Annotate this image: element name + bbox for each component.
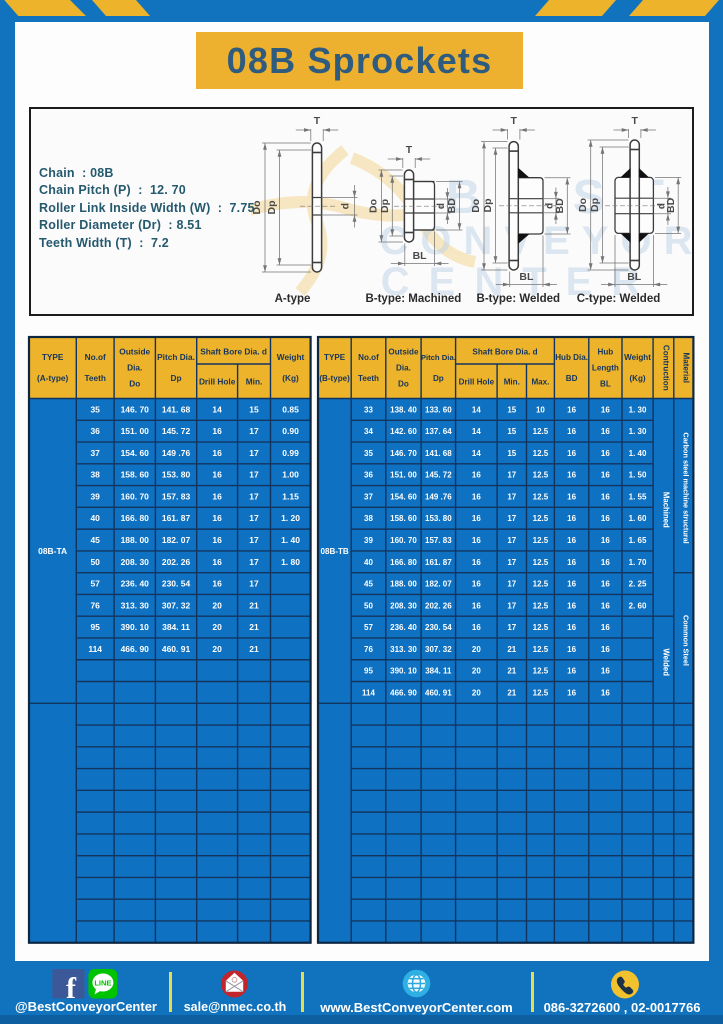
svg-text:307. 32: 307. 32 (162, 600, 191, 610)
svg-text:230. 54: 230. 54 (425, 623, 452, 632)
svg-text:1. 60: 1. 60 (628, 514, 646, 523)
svg-text:(B-type): (B-type) (319, 374, 350, 383)
svg-text:12.5: 12.5 (532, 536, 548, 545)
svg-text:21: 21 (249, 643, 259, 653)
svg-text:Dia.: Dia. (396, 363, 411, 372)
svg-text:16: 16 (601, 514, 610, 523)
svg-text:182. 07: 182. 07 (425, 579, 452, 588)
svg-text:16: 16 (567, 514, 576, 523)
svg-text:BD: BD (446, 198, 458, 214)
svg-text:460. 91: 460. 91 (425, 688, 452, 697)
svg-text:16: 16 (212, 556, 222, 566)
svg-text:40: 40 (364, 557, 373, 566)
svg-text:16: 16 (471, 536, 480, 545)
svg-text:(Kg): (Kg) (282, 373, 299, 383)
svg-text:Weight: Weight (624, 353, 651, 362)
svg-text:1. 70: 1. 70 (628, 557, 646, 566)
svg-text:17: 17 (249, 578, 259, 588)
svg-text:1.15: 1.15 (282, 491, 299, 501)
svg-text:12.5: 12.5 (532, 514, 548, 523)
svg-text:15: 15 (507, 427, 516, 436)
svg-text:16: 16 (601, 579, 610, 588)
svg-text:16: 16 (601, 536, 610, 545)
svg-text:35: 35 (90, 404, 100, 414)
svg-text:08B-TA: 08B-TA (38, 545, 67, 555)
svg-text:166. 80: 166. 80 (390, 557, 417, 566)
svg-text:14: 14 (212, 404, 222, 414)
svg-text:08B-TB: 08B-TB (320, 546, 348, 555)
svg-text:21: 21 (507, 644, 516, 653)
svg-text:38: 38 (364, 514, 373, 523)
svg-text:14: 14 (471, 427, 480, 436)
svg-text:1. 55: 1. 55 (628, 492, 646, 501)
svg-text:153. 80: 153. 80 (425, 514, 452, 523)
svg-text:(Kg): (Kg) (629, 374, 645, 383)
svg-text:390. 10: 390. 10 (390, 666, 417, 675)
svg-text:16: 16 (567, 448, 576, 457)
svg-text:17: 17 (507, 492, 516, 501)
svg-text:17: 17 (507, 536, 516, 545)
svg-text:154. 60: 154. 60 (121, 447, 150, 457)
svg-text:BD: BD (565, 374, 577, 383)
svg-text:T: T (314, 115, 321, 127)
svg-text:149 .76: 149 .76 (425, 492, 452, 501)
svg-text:Do: Do (367, 199, 379, 213)
svg-text:33: 33 (364, 405, 373, 414)
svg-text:151. 00: 151. 00 (121, 426, 150, 436)
svg-text:16: 16 (601, 492, 610, 501)
svg-text:16: 16 (567, 427, 576, 436)
svg-text:2. 60: 2. 60 (628, 601, 646, 610)
svg-text:LINE: LINE (94, 979, 111, 988)
svg-text:Carbon steel machine structur: Carbon steel machine structural (681, 432, 690, 543)
svg-text:307. 32: 307. 32 (425, 644, 452, 653)
svg-text:14: 14 (471, 405, 480, 414)
svg-text:A-type: A-type (275, 293, 311, 305)
svg-text:230. 54: 230. 54 (162, 578, 191, 588)
svg-text:1. 30: 1. 30 (628, 405, 646, 414)
svg-text:1. 30: 1. 30 (628, 427, 646, 436)
svg-text:16: 16 (567, 536, 576, 545)
svg-text:236. 40: 236. 40 (121, 578, 150, 588)
svg-text:20: 20 (212, 643, 222, 653)
svg-text:133. 60: 133. 60 (425, 405, 452, 414)
svg-text:Do: Do (251, 201, 263, 215)
svg-text:Pitch Dia.: Pitch Dia. (157, 352, 195, 362)
svg-text:146. 70: 146. 70 (390, 448, 417, 457)
svg-text:313. 30: 313. 30 (121, 600, 150, 610)
svg-text:145. 72: 145. 72 (162, 426, 191, 436)
svg-text:202. 26: 202. 26 (425, 601, 452, 610)
svg-text:12.5: 12.5 (532, 492, 548, 501)
svg-text:Outside: Outside (388, 347, 419, 356)
svg-text:Dia.: Dia. (127, 362, 142, 372)
svg-text:142. 60: 142. 60 (390, 427, 417, 436)
svg-text:T: T (510, 115, 517, 127)
svg-text:16: 16 (471, 470, 480, 479)
svg-text:16: 16 (567, 601, 576, 610)
svg-text:1.00: 1.00 (282, 469, 299, 479)
svg-text:1. 20: 1. 20 (281, 513, 300, 523)
svg-text:17: 17 (507, 623, 516, 632)
svg-text:160. 70: 160. 70 (121, 491, 150, 501)
svg-text:BL: BL (627, 271, 642, 283)
svg-text:Hub: Hub (597, 347, 613, 356)
svg-text:17: 17 (507, 557, 516, 566)
svg-text:10: 10 (536, 405, 545, 414)
svg-text:137. 64: 137. 64 (425, 427, 452, 436)
svg-text:12.5: 12.5 (532, 644, 548, 653)
svg-text:Max.: Max. (531, 377, 549, 386)
svg-text:16: 16 (601, 405, 610, 414)
svg-text:17: 17 (507, 579, 516, 588)
svg-text:Do: Do (577, 198, 589, 212)
svg-text:95: 95 (364, 666, 373, 675)
svg-text:154. 60: 154. 60 (390, 492, 417, 501)
svg-text:Teeth: Teeth (84, 373, 105, 383)
svg-text:57: 57 (90, 578, 100, 588)
svg-text:16: 16 (601, 601, 610, 610)
svg-text:Dp: Dp (433, 374, 444, 383)
svg-text:17: 17 (249, 535, 259, 545)
svg-text:16: 16 (212, 447, 222, 457)
svg-text:Shaft Bore Dia. d: Shaft Bore Dia. d (200, 346, 267, 356)
svg-text:16: 16 (567, 492, 576, 501)
svg-text:166. 80: 166. 80 (121, 513, 150, 523)
svg-text:Weight: Weight (277, 352, 305, 362)
svg-text:12.5: 12.5 (532, 688, 548, 697)
svg-text:50: 50 (364, 601, 373, 610)
svg-text:20: 20 (471, 688, 480, 697)
svg-text:BL: BL (600, 379, 611, 388)
svg-text:0.99: 0.99 (282, 447, 299, 457)
svg-text:Min.: Min. (503, 377, 519, 386)
svg-text:57: 57 (364, 623, 373, 632)
svg-text:76: 76 (364, 644, 373, 653)
svg-text:12.5: 12.5 (532, 666, 548, 675)
svg-text:114: 114 (362, 688, 375, 697)
svg-text:138. 40: 138. 40 (390, 405, 417, 414)
svg-text:16: 16 (601, 557, 610, 566)
svg-text:161. 87: 161. 87 (162, 513, 191, 523)
svg-text:38: 38 (90, 469, 100, 479)
svg-text:16: 16 (567, 405, 576, 414)
svg-text:TYPE: TYPE (42, 352, 64, 362)
svg-text:C-type: Welded: C-type: Welded (577, 293, 661, 305)
svg-text:12.5: 12.5 (532, 448, 548, 457)
svg-text:16: 16 (601, 427, 610, 436)
svg-text:17: 17 (249, 447, 259, 457)
svg-text:16: 16 (471, 579, 480, 588)
svg-text:390. 10: 390. 10 (121, 622, 150, 632)
svg-text:188. 00: 188. 00 (390, 579, 417, 588)
svg-text:Do: Do (129, 378, 140, 388)
svg-text:15: 15 (507, 405, 516, 414)
svg-text:16: 16 (212, 535, 222, 545)
svg-text:146. 70: 146. 70 (121, 404, 150, 414)
svg-text:BD: BD (665, 197, 677, 213)
svg-text:16: 16 (212, 578, 222, 588)
svg-text:1. 40: 1. 40 (281, 535, 300, 545)
svg-text:182. 07: 182. 07 (162, 535, 191, 545)
svg-text:141. 68: 141. 68 (425, 448, 452, 457)
svg-text:157. 83: 157. 83 (162, 491, 191, 501)
svg-text:15: 15 (507, 448, 516, 457)
svg-text:Drill Hole: Drill Hole (458, 377, 494, 386)
svg-text:Pitch Dia.: Pitch Dia. (420, 353, 455, 362)
svg-text:Common Steel: Common Steel (681, 614, 690, 665)
svg-text:2. 25: 2. 25 (628, 579, 646, 588)
svg-text:Dp: Dp (589, 198, 601, 212)
svg-text:16: 16 (471, 557, 480, 566)
svg-text:16: 16 (601, 644, 610, 653)
svg-text:40: 40 (90, 513, 100, 523)
svg-text:Welded: Welded (661, 648, 670, 676)
svg-text:17: 17 (249, 469, 259, 479)
svg-text:Dp: Dp (482, 199, 494, 213)
svg-text:20: 20 (212, 600, 222, 610)
svg-text:21: 21 (507, 666, 516, 675)
svg-text:12.5: 12.5 (532, 557, 548, 566)
svg-text:16: 16 (567, 644, 576, 653)
svg-text:16: 16 (212, 513, 222, 523)
svg-text:466. 90: 466. 90 (121, 643, 150, 653)
svg-text:208. 30: 208. 30 (390, 601, 417, 610)
svg-text:16: 16 (471, 623, 480, 632)
svg-text:466. 90: 466. 90 (390, 688, 417, 697)
svg-text:21: 21 (249, 622, 259, 632)
svg-text:12.5: 12.5 (532, 470, 548, 479)
svg-text:Length: Length (592, 363, 619, 372)
svg-text:T: T (406, 144, 413, 156)
svg-text:16: 16 (601, 470, 610, 479)
svg-text:17: 17 (249, 556, 259, 566)
svg-text:16: 16 (601, 666, 610, 675)
svg-text:45: 45 (90, 535, 100, 545)
svg-text:16: 16 (212, 469, 222, 479)
svg-text:17: 17 (507, 514, 516, 523)
svg-text:16: 16 (601, 623, 610, 632)
svg-text:12.5: 12.5 (532, 601, 548, 610)
svg-text:16: 16 (212, 491, 222, 501)
svg-text:1. 80: 1. 80 (281, 556, 300, 566)
svg-text:17: 17 (249, 513, 259, 523)
svg-text:B-type: Welded: B-type: Welded (477, 293, 561, 305)
svg-text:39: 39 (90, 491, 100, 501)
svg-text:1. 65: 1. 65 (628, 536, 646, 545)
svg-text:460. 91: 460. 91 (162, 643, 191, 653)
svg-text:141. 68: 141. 68 (162, 404, 191, 414)
svg-text:76: 76 (90, 600, 100, 610)
svg-text:202. 26: 202. 26 (162, 556, 191, 566)
svg-text:158. 60: 158. 60 (121, 469, 150, 479)
svg-text:16: 16 (601, 448, 610, 457)
svg-text:36: 36 (364, 470, 373, 479)
svg-text:T: T (631, 115, 638, 127)
svg-text:BD: BD (554, 198, 566, 214)
svg-text:Machined: Machined (661, 491, 670, 527)
svg-text:B-type: Machined: B-type: Machined (365, 293, 461, 305)
svg-text:Teeth: Teeth (358, 374, 379, 383)
svg-text:384. 11: 384. 11 (425, 666, 452, 675)
svg-text:37: 37 (364, 492, 373, 501)
svg-text:151. 00: 151. 00 (390, 470, 417, 479)
svg-text:157. 83: 157. 83 (425, 536, 452, 545)
svg-text:0.85: 0.85 (282, 404, 299, 414)
svg-text:1. 50: 1. 50 (628, 470, 646, 479)
svg-text:Material: Material (681, 352, 690, 383)
svg-text:12.5: 12.5 (532, 579, 548, 588)
svg-text:17: 17 (507, 601, 516, 610)
svg-text:Shaft Bore Dia. d: Shaft Bore Dia. d (472, 347, 537, 356)
svg-text:16: 16 (567, 623, 576, 632)
svg-text:Hub Dia.: Hub Dia. (555, 353, 588, 362)
svg-text:236. 40: 236. 40 (390, 623, 417, 632)
svg-text:36: 36 (90, 426, 100, 436)
svg-text:12.5: 12.5 (532, 623, 548, 632)
svg-text:Dp: Dp (266, 201, 278, 215)
svg-text:16: 16 (212, 426, 222, 436)
svg-text:34: 34 (364, 427, 373, 436)
svg-text:208. 30: 208. 30 (121, 556, 150, 566)
svg-text:16: 16 (471, 601, 480, 610)
svg-text:161. 87: 161. 87 (425, 557, 452, 566)
svg-text:Dp: Dp (171, 373, 182, 383)
svg-text:Do: Do (470, 199, 482, 213)
svg-text:158. 60: 158. 60 (390, 514, 417, 523)
svg-text:(A-type): (A-type) (37, 373, 69, 383)
svg-text:17: 17 (249, 491, 259, 501)
svg-text:384. 11: 384. 11 (162, 622, 190, 632)
svg-text:Contruction: Contruction (661, 344, 670, 390)
svg-text:TYPE: TYPE (324, 353, 346, 362)
svg-text:17: 17 (249, 426, 259, 436)
svg-text:Dp: Dp (379, 199, 391, 213)
svg-text:35: 35 (364, 448, 373, 457)
svg-text:No.of: No.of (358, 353, 379, 362)
svg-text:16: 16 (567, 666, 576, 675)
svg-text:114: 114 (88, 643, 102, 653)
svg-text:17: 17 (507, 470, 516, 479)
svg-text:313. 30: 313. 30 (390, 644, 417, 653)
svg-text:Outside: Outside (119, 346, 150, 356)
svg-text:16: 16 (567, 557, 576, 566)
svg-text:16: 16 (567, 688, 576, 697)
svg-text:20: 20 (471, 644, 480, 653)
svg-text:1. 40: 1. 40 (628, 448, 646, 457)
svg-text:95: 95 (90, 622, 100, 632)
svg-text:39: 39 (364, 536, 373, 545)
svg-text:145. 72: 145. 72 (425, 470, 452, 479)
svg-text:15: 15 (249, 404, 259, 414)
svg-text:45: 45 (364, 579, 373, 588)
svg-text:20: 20 (212, 622, 222, 632)
svg-text:Do: Do (398, 379, 409, 388)
svg-text:20: 20 (471, 666, 480, 675)
svg-text:0.90: 0.90 (282, 426, 299, 436)
svg-text:37: 37 (90, 447, 100, 457)
svg-text:50: 50 (90, 556, 100, 566)
svg-text:149 .76: 149 .76 (162, 447, 191, 457)
svg-text:16: 16 (471, 492, 480, 501)
svg-text:153. 80: 153. 80 (162, 469, 191, 479)
svg-text:d: d (340, 203, 352, 209)
svg-text:12.5: 12.5 (532, 427, 548, 436)
svg-text:16: 16 (471, 514, 480, 523)
svg-text:21: 21 (507, 688, 516, 697)
svg-text:16: 16 (567, 470, 576, 479)
svg-text:188. 00: 188. 00 (121, 535, 150, 545)
svg-text:No.of: No.of (85, 352, 106, 362)
svg-text:BL: BL (519, 271, 534, 283)
svg-text:16: 16 (601, 688, 610, 697)
svg-text:21: 21 (249, 600, 259, 610)
svg-text:Drill Hole: Drill Hole (199, 376, 236, 386)
svg-text:14: 14 (471, 448, 480, 457)
svg-text:160. 70: 160. 70 (390, 536, 417, 545)
svg-text:16: 16 (567, 579, 576, 588)
svg-text:Min.: Min. (246, 376, 263, 386)
svg-text:BL: BL (413, 250, 428, 262)
